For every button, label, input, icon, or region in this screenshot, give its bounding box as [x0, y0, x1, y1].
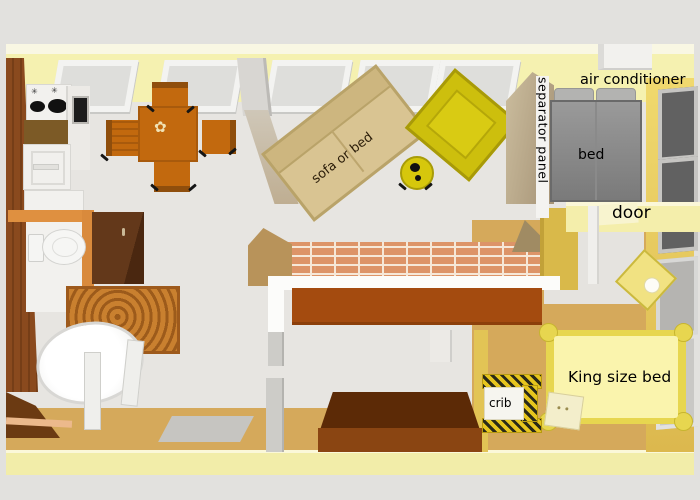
floor-plan: ✳ ✳ ✿ sofa or bed: [0, 0, 700, 500]
brown-chest-front: [318, 428, 482, 452]
crib-label: crib: [489, 397, 511, 409]
stove-burner: [48, 99, 67, 113]
dining-chair-right: [202, 120, 236, 154]
armchair-seat: [426, 89, 497, 159]
dining-table: ✿: [138, 106, 198, 162]
crib: crib: [482, 372, 544, 432]
toy-eye: [557, 406, 560, 409]
bathroom-wall-top: [8, 210, 88, 222]
oven-unit: [23, 144, 71, 190]
wardrobe-handle: [122, 228, 125, 236]
king-bed-label: King size bed: [568, 370, 671, 386]
door-jamb: [588, 206, 599, 284]
shower-screen-1: [84, 352, 101, 430]
partition-column: [237, 58, 272, 116]
door-label: door: [612, 205, 651, 222]
wall-slab-gray-1: [268, 332, 284, 366]
stove-knob-icon: ✳: [51, 86, 58, 95]
crib-rail-right: [522, 385, 538, 422]
right-door-panel-1: [658, 86, 698, 161]
bed-label: bed: [578, 148, 604, 162]
air-conditioner-label: air conditioner: [580, 73, 685, 88]
crib-toy: [544, 392, 584, 431]
kitchen-cabinet-band: [24, 120, 68, 144]
toilet-bowl-inner: [52, 237, 78, 257]
brown-chest-top: [320, 392, 480, 430]
dining-chair-bottom: [154, 158, 190, 192]
table-flower-icon: ✿: [154, 118, 167, 136]
double-bed: bed: [550, 100, 642, 202]
oven-window: [72, 96, 89, 124]
air-conditioner-unit: [598, 44, 652, 70]
oven-handle: [33, 164, 59, 170]
doormat: [158, 416, 254, 442]
counter-brown: [292, 288, 542, 325]
stool-item: [410, 163, 420, 172]
toy-eye: [565, 407, 568, 410]
stool-item: [415, 175, 421, 181]
side-chair-cushion: [641, 274, 664, 297]
stove-knob-icon: ✳: [31, 87, 38, 96]
stove-burner: [30, 101, 45, 112]
wardrobe: [92, 212, 144, 284]
separator-panel-label: separator panel: [536, 76, 549, 218]
dining-chair-left: [106, 120, 140, 156]
wall-slab-gray-2: [266, 378, 284, 452]
wall-slab-white: [430, 330, 452, 362]
toilet-bowl: [42, 229, 86, 265]
crib-mattress: crib: [484, 387, 524, 420]
bottom-wall: [6, 450, 694, 475]
